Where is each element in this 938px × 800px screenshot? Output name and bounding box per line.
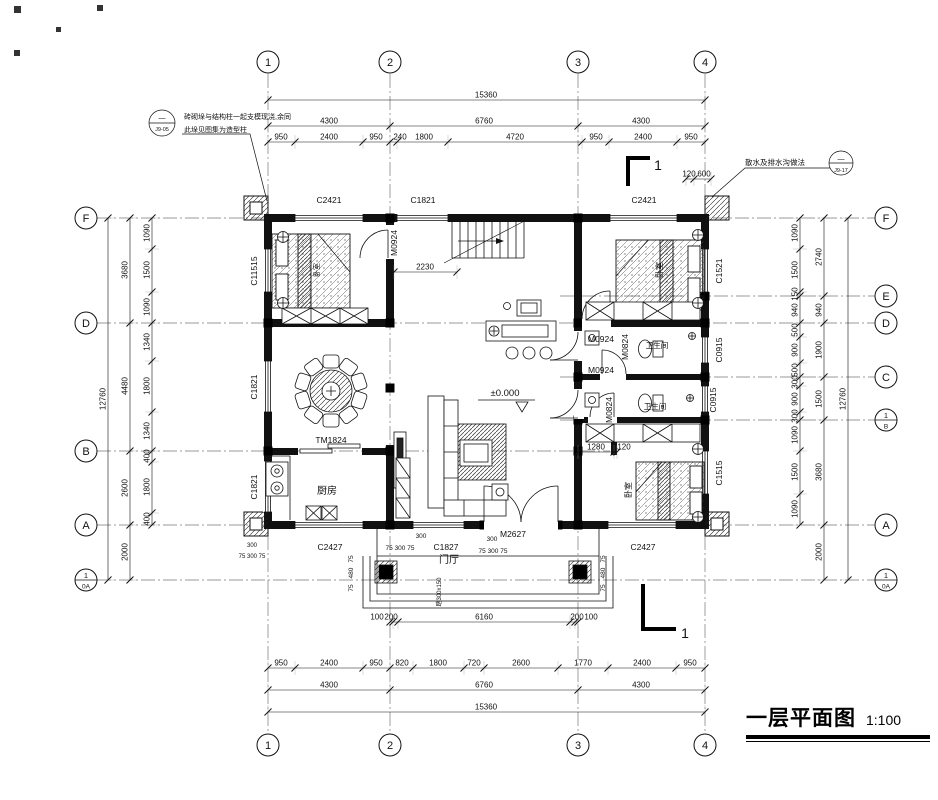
console-table <box>486 300 556 359</box>
dim-label: 4300 <box>320 117 338 126</box>
note-text: 散水及排水沟做法 <box>745 157 805 167</box>
window-label: C1827 <box>433 542 458 552</box>
level-mark-symbol <box>478 400 535 412</box>
window-label: C1821 <box>249 474 259 499</box>
axis-label: 2 <box>387 57 393 69</box>
dim-label: 480 <box>348 567 355 578</box>
dim-label: 4300 <box>632 681 650 690</box>
dim-label: 3680 <box>815 463 824 481</box>
stool <box>540 347 552 359</box>
dim-label: 940 <box>815 303 824 317</box>
sheet-fragments <box>14 5 103 56</box>
axis-label: 1 <box>265 57 271 69</box>
ref-bubble-top: — <box>838 156 845 163</box>
axis-label: 1 <box>265 740 271 752</box>
room-label: 卫生间 <box>644 401 667 411</box>
door-label: M2627 <box>500 529 526 539</box>
dim-label: 100 <box>584 613 598 622</box>
dim-label: 15360 <box>475 703 498 712</box>
axis-label: 2 <box>387 740 393 752</box>
window-label: C2421 <box>316 195 341 205</box>
axis-label: F <box>883 213 890 225</box>
axis-label: 3 <box>575 57 581 69</box>
dim-label: 1800 <box>415 133 433 142</box>
dim-label: 75 <box>348 555 355 563</box>
axis-label: 4 <box>702 57 708 69</box>
steps-note: 踏300x150 <box>435 577 443 607</box>
dim-label: 1090 <box>143 298 152 316</box>
dim-label: 1500 <box>791 261 800 279</box>
dim-label: 500 <box>791 363 800 377</box>
dim-label: 2740 <box>815 248 824 266</box>
bed-upper-left <box>272 234 350 308</box>
dim-label: 950 <box>274 133 288 142</box>
dim-label: 12760 <box>839 387 848 410</box>
dim-label: 720 <box>467 659 481 668</box>
dim-label: 2400 <box>320 659 338 668</box>
section-number: 1 <box>681 625 689 641</box>
dim-label: 300 <box>247 543 258 549</box>
dim-label: 1280 <box>587 443 605 452</box>
room-label: 卧室 <box>312 263 321 277</box>
dim-label: 1090 <box>791 224 800 242</box>
axis-label: C <box>882 372 890 384</box>
dim-label: 100 <box>370 613 384 622</box>
dim-label: 2400 <box>320 133 338 142</box>
sofa-back <box>428 396 444 508</box>
axis-label: D <box>882 318 890 330</box>
dim-label: 6760 <box>475 681 493 690</box>
dim-label: 12760 <box>99 387 108 410</box>
room-label: 厨房 <box>317 484 337 497</box>
window-label: C2427 <box>630 542 655 552</box>
door-label: M0824 <box>620 334 630 360</box>
dim-label: 2600 <box>512 659 530 668</box>
level-mark: ±0.000 <box>491 388 520 399</box>
dim-label: 900 <box>791 343 800 357</box>
window-label: C1821 <box>410 195 435 205</box>
dim-label: 75 300 75 <box>239 554 266 560</box>
dim-label: 75 <box>348 584 355 592</box>
window-label: C2421 <box>631 195 656 205</box>
window-label: C1821 <box>249 374 259 399</box>
stairs <box>444 217 532 263</box>
dim-label: 2600 <box>121 479 130 497</box>
axis-label: B <box>884 424 888 431</box>
door-label: M0924 <box>588 334 614 344</box>
ref-bubble-code: J9-17 <box>834 168 848 174</box>
dim-label: 150 <box>791 287 800 301</box>
dim-label: 6160 <box>475 613 493 622</box>
dim-label: 200 <box>384 613 398 622</box>
dim-label: 15360 <box>475 91 498 100</box>
axis-label: 1 <box>84 571 88 580</box>
axis-label: B <box>82 446 89 458</box>
window-label: C2427 <box>317 542 342 552</box>
dim-label: 480 <box>600 567 607 578</box>
dim-label: 500 <box>791 323 800 337</box>
section-marks <box>628 158 676 629</box>
dim-label: 1800 <box>143 377 152 395</box>
dim-label: 3680 <box>121 261 130 279</box>
note-leaders <box>149 110 853 201</box>
axis-label: E <box>882 291 889 303</box>
dim-label: 820 <box>395 659 409 668</box>
window-label: C0915 <box>714 337 724 362</box>
axis-label: F <box>83 213 90 225</box>
dim-label: 940 <box>791 303 800 317</box>
axis-label: 3 <box>575 740 581 752</box>
stool <box>506 347 518 359</box>
dim-label: 2000 <box>815 543 824 561</box>
room-label: 卧室 <box>623 482 633 498</box>
dim-label: 6760 <box>475 117 493 126</box>
section-number: 1 <box>654 157 662 173</box>
dim-label: 950 <box>369 133 383 142</box>
dim-label: 300 <box>791 409 800 423</box>
dim-label: 75 <box>600 584 607 592</box>
dim-label: 2000 <box>121 543 130 561</box>
dim-label: 1090 <box>143 224 152 242</box>
dim-label: 4480 <box>121 377 130 395</box>
dim-label: 200 <box>570 613 584 622</box>
dim-label: 300 <box>791 375 800 389</box>
dim-label: 1090 <box>791 500 800 518</box>
room-label: 卧室 <box>654 262 664 278</box>
dim-label: 1800 <box>429 659 447 668</box>
dim-label: 4300 <box>632 117 650 126</box>
dim-label: 4300 <box>320 681 338 690</box>
living-room-furniture <box>394 396 508 516</box>
note-text: 此垛见图集为造型柱 <box>184 125 247 134</box>
dim-label: 1800 <box>143 478 152 496</box>
axis-label: 1 <box>884 411 888 420</box>
window-label: C11515 <box>249 256 259 285</box>
dim-label: 2400 <box>634 133 652 142</box>
dim-label: 75 300 75 <box>479 548 508 555</box>
dim-label: 120 <box>617 443 631 452</box>
dim-label: 950 <box>369 659 383 668</box>
room-label: 卫生间 <box>646 340 669 350</box>
stool <box>523 347 535 359</box>
dim-label: 240 <box>393 133 407 142</box>
axis-label: A <box>882 520 890 532</box>
dim-label: 1500 <box>791 463 800 481</box>
dim-label: 4720 <box>506 133 524 142</box>
drawing-title: 一层平面图 <box>746 702 856 732</box>
dim-label: 950 <box>684 133 698 142</box>
window-label: C1521 <box>714 258 724 283</box>
axis-label: A <box>82 520 90 532</box>
ref-bubble-code: J9-05 <box>155 127 169 133</box>
drawing-scale: 1:100 <box>866 712 901 728</box>
floor-plan-canvas: 1536043006760430095024009502401800472095… <box>0 0 938 800</box>
dim-label: 1340 <box>143 333 152 351</box>
dim-label: 900 <box>791 392 800 406</box>
bed-lower-right <box>636 462 704 520</box>
door-label: M0824 <box>604 397 614 423</box>
axis-label: 1 <box>884 571 888 580</box>
ref-bubble-top: — <box>159 115 166 122</box>
title-block: 一层平面图 1:100 <box>746 702 930 742</box>
door-label: TM1824 <box>315 435 346 445</box>
dim-label: 75 300 75 <box>386 545 415 552</box>
axis-label: 4 <box>702 740 708 752</box>
dim-label: 300 <box>487 536 498 543</box>
dim-label: 400 <box>143 512 152 526</box>
dim-label: 120 <box>682 170 696 179</box>
dim-label: 950 <box>683 659 697 668</box>
dim-label: 2230 <box>416 263 434 272</box>
dim-label: 1770 <box>574 659 592 668</box>
dim-label: 1500 <box>815 390 824 408</box>
dining-table <box>294 355 367 427</box>
door-label: M0924 <box>389 230 399 256</box>
dim-label: 300 <box>416 533 427 540</box>
dim-label: 1500 <box>143 261 152 279</box>
dim-label: 950 <box>274 659 288 668</box>
dim-label: 400 <box>143 449 152 463</box>
grid-lines <box>97 74 875 733</box>
dim-label: 950 <box>589 133 603 142</box>
door-label: M0924 <box>588 365 614 375</box>
dim-label: 1340 <box>143 422 152 440</box>
room-label: 门厅 <box>439 553 459 566</box>
window-label: C0915 <box>708 387 718 412</box>
note-text: 砖砌垛与结构柱一起支模现浇,余同 <box>184 112 291 121</box>
axis-label: D <box>82 318 90 330</box>
axis-label: 0A <box>82 584 91 591</box>
dim-label: 75 <box>600 555 607 563</box>
window-label: C1515 <box>714 460 724 485</box>
dim-label: 2400 <box>633 659 651 668</box>
dim-label: 1090 <box>791 426 800 444</box>
title-underline <box>746 741 930 742</box>
dim-label: 600 <box>697 170 711 179</box>
axis-label: 0A <box>882 584 891 591</box>
dim-label: 1900 <box>815 341 824 359</box>
drawing-sheet: 1536043006760430095024009502401800472095… <box>0 0 938 800</box>
